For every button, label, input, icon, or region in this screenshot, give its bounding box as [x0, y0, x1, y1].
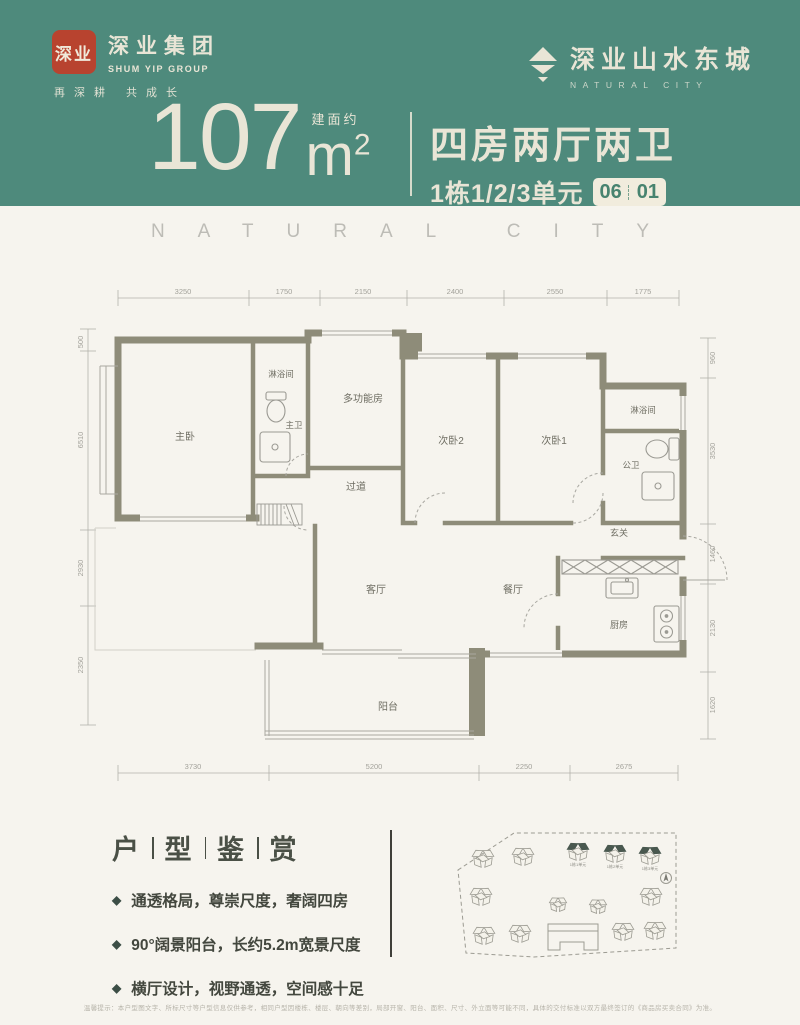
room-label-multi: 多功能房	[343, 392, 383, 405]
company-name-en: SHUM YIP GROUP	[108, 64, 220, 74]
room-label-kitchen: 厨房	[610, 619, 628, 630]
company-name-cn: 深业集团	[108, 30, 220, 60]
room-label-balcony: 阳台	[378, 700, 398, 713]
project-name-cn: 深业山水东城	[570, 40, 756, 76]
svg-text:500: 500	[76, 336, 85, 349]
svg-text:2250: 2250	[516, 762, 533, 771]
features-panel: 户 型 鉴 赏 ◆ 通透格局，尊崇尺度，奢阔四房 ◆ 90°阔景阳台，长约5.2…	[112, 828, 387, 999]
svg-text:1775: 1775	[635, 287, 652, 296]
area-unit: m2	[306, 130, 371, 181]
developer-logo: 深业 深业集团 SHUM YIP GROUP	[52, 30, 220, 74]
windows	[100, 329, 687, 739]
balcony-wall	[469, 648, 485, 736]
svg-text:2400: 2400	[447, 287, 464, 296]
svg-text:1栋3单元: 1栋3单元	[642, 865, 658, 871]
svg-text:2130: 2130	[708, 620, 717, 637]
svg-text:1栋1单元: 1栋1单元	[570, 861, 586, 867]
svg-text:1620: 1620	[708, 697, 717, 714]
exterior-walls	[118, 333, 683, 654]
area-number: 107	[148, 94, 301, 181]
room-label-bed2: 次卧2	[438, 434, 464, 447]
diamond-bullet-icon: ◆	[112, 937, 121, 951]
room-label-bed1: 次卧1	[541, 434, 567, 447]
badge-right: 01	[637, 179, 659, 205]
unit-number-badge: 06 01	[593, 178, 667, 206]
room-label-shower2: 淋浴间	[630, 405, 656, 415]
room-label-corridor: 过道	[346, 480, 366, 493]
svg-text:3730: 3730	[185, 762, 202, 771]
feature-item: ◆ 90°阔景阳台，长约5.2m宽景尺度	[112, 933, 387, 955]
compass-icon	[661, 873, 672, 884]
closet-hatch	[257, 504, 302, 525]
diamond-bullet-icon: ◆	[112, 893, 121, 907]
svg-text:3250: 3250	[175, 287, 192, 296]
disclaimer-text: 温馨提示：本户型图文字、所标尺寸等户型信息仅供参考，相同户型因楼栋、楼层、朝向等…	[0, 1002, 800, 1012]
room-label-foyer: 玄关	[610, 527, 628, 538]
headline-right: 四房两厅两卫 1栋1/2/3单元 06 01	[430, 114, 676, 210]
siteplan: 1栋1单元 1栋2单元 1栋3单元	[438, 818, 723, 996]
svg-text:1750: 1750	[276, 287, 293, 296]
poster: 深业 深业集团 SHUM YIP GROUP 再深耕 共成长 深业山水东城 NA…	[0, 0, 800, 1025]
diamond-bullet-icon: ◆	[112, 981, 121, 995]
svg-text:3530: 3530	[708, 443, 717, 460]
room-label-master-bath: 主卫	[285, 420, 303, 430]
badge-separator	[628, 185, 631, 200]
svg-text:6510: 6510	[76, 432, 85, 449]
room-labels: 主卧 淋浴间 主卫 多功能房 次卧2 次卧1 淋浴间 公卫 过道 玄关 客厅 餐…	[175, 369, 656, 713]
room-label-dining: 餐厅	[503, 583, 523, 596]
svg-text:2350: 2350	[76, 657, 85, 674]
room-label-living: 客厅	[366, 583, 386, 596]
room-label-shower1: 淋浴间	[268, 369, 294, 379]
watermark-text: NATURAL CITY	[0, 221, 800, 243]
seal-text: 深业	[55, 40, 93, 65]
school-building	[548, 924, 598, 950]
floorplan: 3250 1750 2150 2400 2550 1775 3730 5200 …	[70, 276, 730, 791]
svg-text:960: 960	[708, 352, 717, 365]
svg-text:1460: 1460	[708, 546, 717, 563]
area-headline: 107 建面约 m2	[148, 94, 371, 181]
layout-type: 四房两厅两卫	[430, 114, 676, 169]
vertical-divider	[390, 830, 392, 957]
project-name-en: NATURAL CITY	[570, 80, 756, 90]
siteplan-buildings	[470, 843, 666, 944]
bath-fixtures	[260, 392, 679, 500]
headline-divider	[410, 112, 412, 196]
badge-left: 06	[600, 179, 622, 205]
svg-text:2675: 2675	[616, 762, 633, 771]
svg-text:2150: 2150	[355, 287, 372, 296]
feature-item: ◆ 通透格局，尊崇尺度，奢阔四房	[112, 889, 387, 911]
features-title: 户 型 鉴 赏	[112, 828, 387, 867]
header-band: 深业 深业集团 SHUM YIP GROUP 再深耕 共成长 深业山水东城 NA…	[0, 0, 800, 206]
neighbour-outline	[95, 528, 256, 650]
room-label-guest-bath: 公卫	[622, 460, 640, 470]
shumyip-seal-icon: 深业	[52, 30, 96, 74]
units-label: 1栋1/2/3单元	[430, 174, 584, 210]
svg-text:2550: 2550	[547, 287, 564, 296]
project-logo: 深业山水东城 NATURAL CITY	[528, 40, 756, 90]
svg-text:1栋2单元: 1栋2单元	[607, 863, 623, 869]
svg-text:5200: 5200	[366, 762, 383, 771]
svg-text:2930: 2930	[76, 560, 85, 577]
feature-item: ◆ 横厅设计，视野通透，空间感十足	[112, 977, 387, 999]
room-label-master: 主卧	[175, 430, 195, 443]
diamond-logo-icon	[528, 46, 558, 84]
